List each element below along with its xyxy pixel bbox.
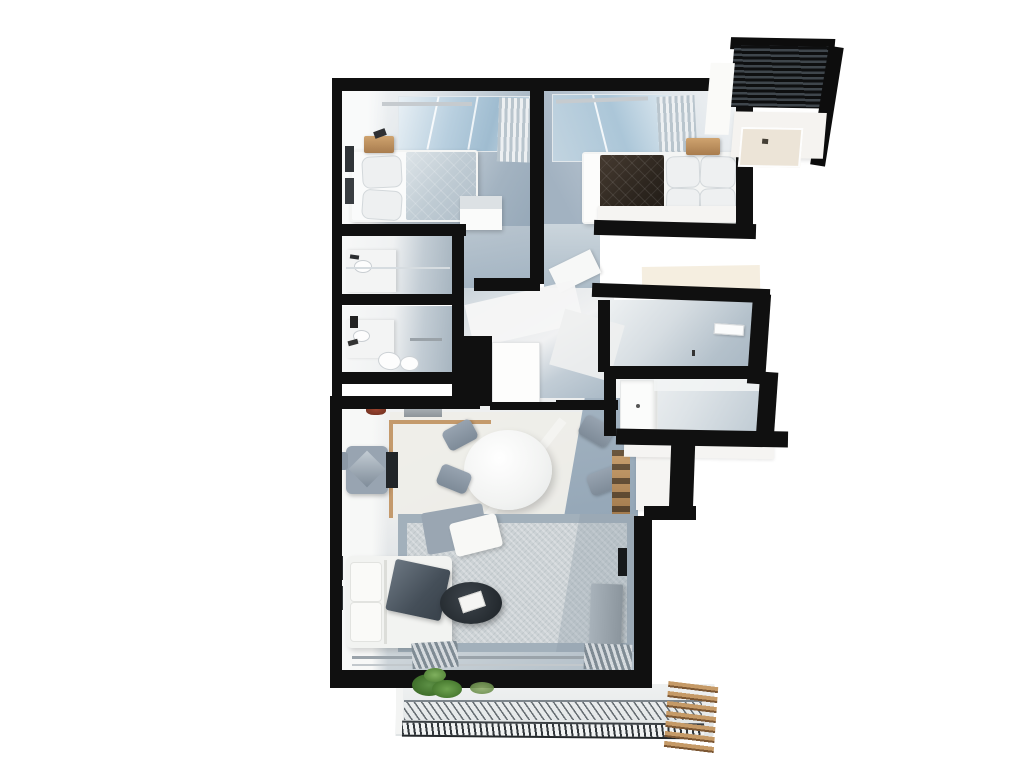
wall-frame xyxy=(345,178,354,204)
wall-kitchen-bottom xyxy=(616,429,788,448)
wall-kitchen-left xyxy=(604,374,616,436)
railing-dense xyxy=(402,721,704,740)
potted-plant xyxy=(432,680,462,698)
wall-left-upper xyxy=(332,78,342,398)
curtain-rail xyxy=(382,102,472,106)
railing-hatch xyxy=(404,700,702,720)
folded-curtain xyxy=(584,643,633,671)
ac-unit xyxy=(714,323,745,336)
throw-blanket xyxy=(385,559,451,622)
balcony-inner-window xyxy=(738,127,804,168)
wall-bedroom-left-bottom xyxy=(340,224,466,236)
folded-curtain xyxy=(411,641,458,669)
round-dining-table xyxy=(464,430,552,510)
sofa-cushion xyxy=(350,602,382,642)
media-console xyxy=(589,583,623,648)
potted-plant-small xyxy=(470,682,494,694)
wood-louvers xyxy=(664,681,718,755)
wall-frame xyxy=(345,146,354,172)
wall-bedroom-divider xyxy=(530,78,544,284)
bidet xyxy=(400,356,419,371)
wall-bedroom-right-bottom xyxy=(594,220,756,239)
kitchen-counter xyxy=(654,378,762,391)
black-tap xyxy=(350,316,358,328)
desk xyxy=(386,452,398,488)
wall-living-right-lower xyxy=(634,516,652,688)
floor-plan-render xyxy=(0,0,1020,765)
wall-shelf xyxy=(404,408,442,417)
towel-rail xyxy=(410,338,442,341)
wall-bath-bottom xyxy=(340,372,452,384)
cabinet-handle xyxy=(636,404,640,408)
wood-floor-trim-horizontal xyxy=(389,420,491,424)
balcony-white-side xyxy=(705,63,735,135)
wall-utility-bottom xyxy=(604,366,764,379)
utility-dark-socket xyxy=(692,350,695,356)
bed-right-pillow xyxy=(665,155,700,188)
shower-glass-screen xyxy=(346,267,450,269)
nightstand xyxy=(364,136,394,153)
wall-door-left xyxy=(462,336,492,406)
wall-hall-stub xyxy=(474,278,540,291)
balcony-slatted-deck xyxy=(729,45,829,108)
hall-door-panel xyxy=(492,342,540,406)
balcony-window-speck xyxy=(762,139,768,145)
bedroom-left-curtain xyxy=(497,97,533,162)
built-in-shelf xyxy=(612,450,630,514)
wall-living-top xyxy=(332,396,480,409)
potted-plant xyxy=(424,668,446,682)
wall-left-lower xyxy=(330,396,342,686)
tv xyxy=(618,548,627,576)
bed-left-pillow xyxy=(361,189,403,222)
wall-door-bottom xyxy=(490,402,568,410)
wall-bath-divider xyxy=(340,294,452,305)
bedroom-bench-top xyxy=(460,196,502,209)
wall-hall-right xyxy=(598,300,610,372)
balcony-top-right xyxy=(701,26,854,188)
sofa-cushion xyxy=(350,562,382,602)
bed-left-pillow xyxy=(361,155,403,189)
